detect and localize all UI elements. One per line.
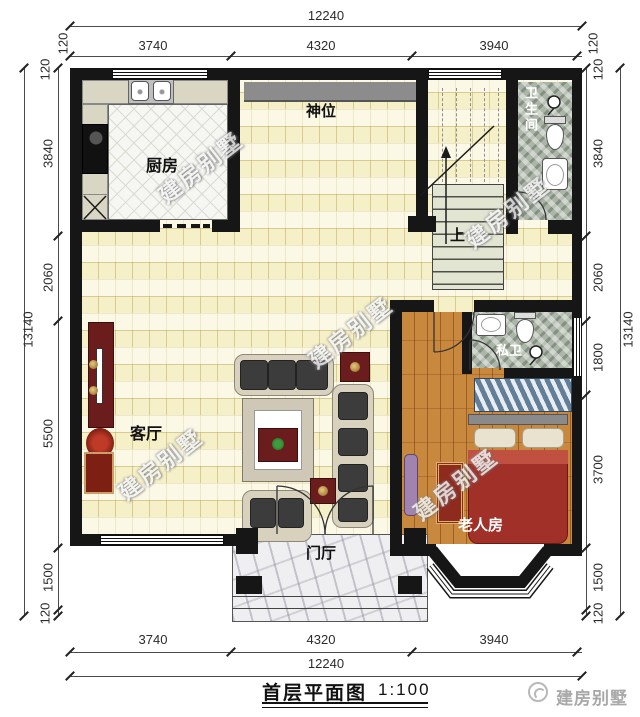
brand-logo-icon bbox=[528, 682, 548, 702]
dim-bottom-seg-1: 3740 bbox=[113, 632, 193, 647]
dim-left-seg-2060: 2060 bbox=[41, 248, 56, 308]
brand-name: 建房别墅 bbox=[556, 684, 628, 709]
plan-title: 首层平面图 bbox=[262, 678, 367, 705]
dim-left-seg-5500: 5500 bbox=[41, 404, 56, 464]
dim-right-seg-120a: 120 bbox=[591, 55, 606, 85]
dim-line-top-outer bbox=[70, 26, 582, 27]
stair-break-line bbox=[420, 126, 494, 196]
dim-left-seg-120a: 120 bbox=[38, 55, 53, 85]
label-private-bath: 私卫 bbox=[496, 340, 522, 359]
dim-line-left-chain bbox=[58, 68, 59, 616]
dim-line-top-chain bbox=[70, 56, 582, 57]
dim-left-total: 13140 bbox=[21, 300, 36, 360]
dim-top-seg-2: 4320 bbox=[281, 38, 361, 53]
bedroom-door-arc bbox=[434, 312, 474, 352]
floor-plan-page: 厨房 神位 卫生间 上 客厅 私卫 老人房 门厅 建房别墅 建房别墅 建房别墅 … bbox=[0, 0, 640, 717]
dim-right-seg-3700: 3700 bbox=[591, 440, 606, 500]
dim-line-right-chain bbox=[586, 68, 587, 616]
dim-top-seg-1: 3740 bbox=[113, 38, 193, 53]
bathroom-shower-symbol bbox=[548, 96, 560, 108]
dim-right-seg-2060: 2060 bbox=[591, 248, 606, 308]
title-underline-thick bbox=[262, 702, 428, 704]
dim-right-seg-120b: 120 bbox=[591, 599, 606, 629]
dim-left-seg-120b: 120 bbox=[38, 599, 53, 629]
label-foyer: 门厅 bbox=[306, 542, 336, 563]
title-underline-thin bbox=[262, 707, 428, 708]
dim-top-end-left: 120 bbox=[56, 29, 71, 59]
plan-scale: 1:100 bbox=[378, 680, 431, 700]
dim-bottom-seg-3: 3940 bbox=[454, 632, 534, 647]
dim-left-seg-3840: 3840 bbox=[41, 124, 56, 184]
label-bathroom: 卫生间 bbox=[521, 86, 540, 134]
dim-top-seg-3: 3940 bbox=[454, 38, 534, 53]
label-elder-room: 老人房 bbox=[458, 514, 503, 535]
dim-right-seg-3840: 3840 bbox=[591, 124, 606, 184]
dim-right-total: 13140 bbox=[621, 300, 636, 360]
dim-line-bottom-outer bbox=[70, 676, 582, 677]
label-shrine: 神位 bbox=[306, 100, 336, 121]
stair-arrow-head bbox=[441, 146, 451, 158]
bathroom-shower-arm bbox=[548, 108, 554, 115]
brand-logo-swirl bbox=[534, 688, 546, 700]
dim-top-total: 12240 bbox=[286, 8, 366, 23]
dim-right-seg-1800: 1800 bbox=[591, 328, 606, 388]
private-bath-shower-arm bbox=[530, 358, 536, 365]
label-living: 客厅 bbox=[130, 420, 162, 444]
dim-bottom-seg-2: 4320 bbox=[281, 632, 361, 647]
bay-window-wall bbox=[432, 550, 548, 582]
foyer-door-arc-right bbox=[325, 486, 373, 534]
private-bath-shower-symbol bbox=[530, 346, 542, 358]
foyer-door-arc-left bbox=[277, 486, 325, 534]
dim-line-bottom-chain bbox=[70, 652, 582, 653]
dim-bottom-total: 12240 bbox=[286, 656, 366, 671]
